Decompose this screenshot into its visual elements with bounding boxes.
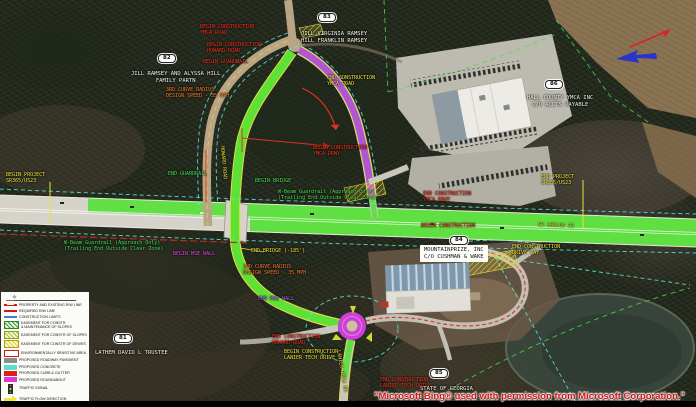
end-construction-drive-way-label: END CONSTRUCTION DRIVE WAY xyxy=(512,245,560,257)
parcel-owner-83: JILL VIRGINIA RAMSEY HILL FRANKLIN RAMSE… xyxy=(301,31,367,44)
hatch-green-swatch xyxy=(4,321,19,329)
box-roundabout-swatch xyxy=(4,377,17,382)
end-construction-ymca-drwy-label: END CONSTRUCTION YMCA DRWY xyxy=(423,192,471,204)
end-project-sr365-label: END PROJECT SR365/US23 xyxy=(541,175,574,187)
legend-item-label: REQUIRED R/W LINE xyxy=(19,309,55,313)
parcel-owner-81: LATHEM DAVID L TRUSTEE xyxy=(95,350,168,357)
begin-construction-howard-road-label: BEGIN CONSTRUCTION HOWARD ROAD xyxy=(207,43,261,55)
legend-item: ENVIRONMENTALLY SENSITIVE AREA xyxy=(4,350,87,357)
legend-item-label: TRAFFIC SIGNAL xyxy=(19,386,48,390)
legend-item: PROPOSED ROADWAY PAVEMENT xyxy=(4,358,87,363)
legend-item: TRAFFIC SIGNAL xyxy=(4,384,87,394)
line-limits-swatch xyxy=(4,316,17,318)
aerial-plan-map: BEGIN CONSTRUCTION YMCA ROADBEGIN CONSTR… xyxy=(0,0,696,407)
begin-mse-wall-label: BEGIN MSE WALL xyxy=(173,252,215,258)
legend-item-label: EASEMENT FOR CONSTR OF SLOPES xyxy=(21,333,87,337)
legend-item-label: EASEMENT FOR CONSTR OF DRIVES xyxy=(21,342,86,346)
parcel-owner-86: HALL COUNTY YMCA INC C/O ACCTS PAYABLE xyxy=(527,95,593,108)
parcel-badge-83: 83 xyxy=(318,13,336,22)
begin-bridge-label: BEGIN BRIDGE xyxy=(255,179,291,185)
parcel-badge-85: 85 xyxy=(430,369,448,378)
box-pavement-swatch xyxy=(4,358,17,363)
begin-construction-mainline-label: BEGIN CONSTRUCTION xyxy=(421,224,475,230)
legend-item-label: ENVIRONMENTALLY SENSITIVE AREA xyxy=(21,351,86,355)
guardrail-note-east-label: W-Beam Guardrail (Approach Only) (Traili… xyxy=(278,190,377,202)
box-concrete-swatch xyxy=(4,365,17,370)
legend-items: PROPERTY AND EXISTING R/W LINEREQUIRED R… xyxy=(4,303,87,403)
parcel-badge-81: 81 xyxy=(114,334,132,343)
end-construction-ymca-road-label: END CONSTRUCTION YMCA ROAD xyxy=(327,76,375,88)
hatch-lime-swatch xyxy=(4,331,19,339)
line-rw-swatch xyxy=(4,304,17,307)
end-bridge-label: END BRIDGE (-185') xyxy=(251,249,305,255)
parcel-owner-82: JILL RAMSEY AND ALYSSA HILL FAMILY PARTN xyxy=(131,71,220,84)
hatch-yellow-swatch xyxy=(4,340,19,348)
begin-construction-lanier-tech-label: BEGIN CONSTRUCTION LANIER TECH DRIVE xyxy=(284,350,338,362)
begin-project-sr365-label: BEGIN PROJECT SR365/US23 xyxy=(6,173,45,185)
legend-item-label: EASEMENT FOR CONSTR & MAINTENANCE OF SLO… xyxy=(21,321,72,330)
mountainprize-building xyxy=(379,262,481,313)
end-construction-howard-road-label: END CONSTRUCTION HOWARD ROAD xyxy=(272,335,320,347)
legend-item-label: PROPOSED ROUNDABOUT xyxy=(19,378,66,382)
parcel-badge-82: 82 xyxy=(158,54,176,63)
box-curb-swatch xyxy=(4,371,17,376)
legend-item-label: PROPERTY AND EXISTING R/W LINE xyxy=(19,303,82,307)
curve-data-3rd-label: 3RD CURVE RADIUS DESIGN SPEED - 35 MPH xyxy=(166,88,229,100)
legend-item: EASEMENT FOR CONSTR & MAINTENANCE OF SLO… xyxy=(4,321,87,330)
legend-item-label: PROPOSED ROADWAY PAVEMENT xyxy=(19,358,79,362)
signal-swatch xyxy=(4,384,17,394)
parcel-owner-84: MOUNTAINPRIZE, INC C/O CUSHMAN & WAKE xyxy=(420,245,488,262)
begin-construction-ymca-drwy-label: BEGIN CONSTRUCTION YMCA DRWY xyxy=(313,146,367,158)
begin-construction-ymca-road-label: BEGIN CONSTRUCTION YMCA ROAD xyxy=(200,25,254,37)
begin-guardrail-label: BEGIN GUARDRAIL xyxy=(203,60,248,66)
legend-item: REQUIRED R/W LINE xyxy=(4,309,87,313)
guardrail-note-west-label: W-Beam Guardrail (Approach Only) (Traili… xyxy=(64,241,163,253)
legend-item-label: PROPOSED CONCRETE xyxy=(19,365,61,369)
legend-item: CONSTRUCTION LIMITS xyxy=(4,315,87,319)
map-legend: ✧ PROPERTY AND EXISTING R/W LINEREQUIRED… xyxy=(1,292,89,401)
route-label-sr365-label: SR 365/US 23 xyxy=(538,223,574,230)
legend-item: EASEMENT FOR CONSTR OF DRIVES xyxy=(4,340,87,348)
parcel-badge-86: 86 xyxy=(545,80,563,89)
legend-item-label: CONSTRUCTION LIMITS xyxy=(19,315,61,319)
line-req-swatch xyxy=(4,310,17,312)
box-env-swatch xyxy=(4,350,19,357)
legend-north-arrow: ✧ xyxy=(4,294,87,303)
legend-item-label: PROPOSED CURB & GUTTER xyxy=(19,371,70,375)
curve-data-2nd-label: 2ND CURVE RADIUS DESIGN SPEED - 35 MPH xyxy=(243,265,306,277)
legend-item: EASEMENT FOR CONSTR OF SLOPES xyxy=(4,331,87,339)
map-graphics xyxy=(0,0,696,407)
legend-item: PROPOSED CURB & GUTTER xyxy=(4,371,87,376)
end-guardrail-label: END GUARDRAIL xyxy=(168,172,207,178)
parcel-badge-84: 84 xyxy=(450,236,468,245)
end-mse-wall-label: END MSE WALL xyxy=(258,297,294,303)
legend-item: PROPERTY AND EXISTING R/W LINE xyxy=(4,303,87,307)
legend-item: PROPOSED ROUNDABOUT xyxy=(4,377,87,382)
legend-item: PROPOSED CONCRETE xyxy=(4,365,87,370)
imagery-credit: "Microsoft Bing® used with permission fr… xyxy=(374,391,685,402)
